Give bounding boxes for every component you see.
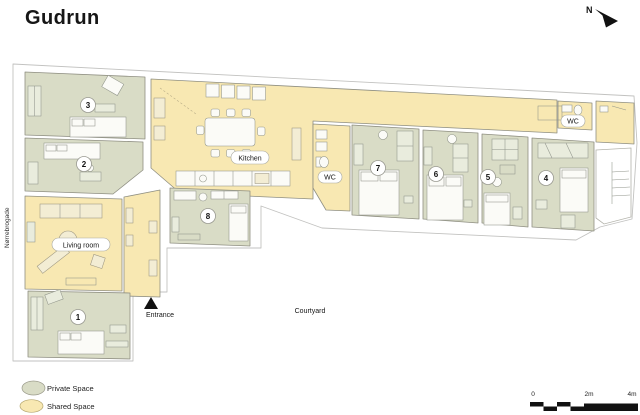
sofa bbox=[40, 204, 102, 218]
badge-1: 1 bbox=[76, 313, 81, 322]
entrance-triangle-icon bbox=[144, 297, 158, 309]
badge-3: 3 bbox=[86, 101, 91, 110]
room-label-kitchen: Kitchen bbox=[231, 151, 269, 164]
room-label-living: Living room bbox=[52, 238, 110, 251]
dining-table bbox=[205, 118, 255, 146]
scale-tick-2m: 2m bbox=[584, 391, 593, 398]
badge-7: 7 bbox=[376, 164, 381, 173]
entrance-marker: Entrance bbox=[144, 297, 174, 319]
courtyard-label: Courtyard bbox=[295, 308, 326, 315]
legend-swatch-private bbox=[22, 381, 45, 395]
legend-swatch-shared bbox=[20, 400, 43, 413]
badge-5: 5 bbox=[486, 173, 491, 182]
wc-left-fixtures bbox=[316, 130, 329, 168]
badge-4: 4 bbox=[544, 174, 549, 183]
badge-8: 8 bbox=[206, 212, 211, 221]
badge-2: 2 bbox=[82, 160, 87, 169]
svg-text:WC: WC bbox=[324, 175, 336, 182]
scale-tick-4m: 4m bbox=[627, 391, 636, 398]
legend-label-shared: Shared Space bbox=[47, 402, 95, 411]
scale-tick-0: 0 bbox=[531, 391, 535, 398]
svg-text:Kitchen: Kitchen bbox=[238, 156, 261, 163]
street-label: Nørrebrogade bbox=[4, 207, 11, 248]
svg-text:WC: WC bbox=[567, 119, 579, 126]
scale-bar: 0 2m 4m bbox=[530, 391, 638, 411]
svg-text:Entrance: Entrance bbox=[146, 312, 174, 319]
room-label-wc-right: WC bbox=[561, 115, 585, 127]
north-arrow-icon bbox=[595, 9, 618, 28]
badge-6: 6 bbox=[434, 170, 439, 179]
north-label: N bbox=[586, 5, 593, 15]
legend: Private Space Shared Space bbox=[20, 381, 95, 412]
page-title: Gudrun bbox=[25, 7, 100, 29]
floorplan-svg: Gudrun N Nørrebrogade bbox=[0, 0, 640, 415]
north-compass: N bbox=[586, 5, 618, 28]
floorplan-page: Gudrun N Nørrebrogade bbox=[0, 0, 640, 415]
room-label-wc-left: WC bbox=[318, 171, 342, 183]
svg-text:Living room: Living room bbox=[63, 243, 99, 250]
stairwell bbox=[596, 148, 631, 224]
toilet-icon bbox=[320, 157, 329, 168]
legend-label-private: Private Space bbox=[47, 384, 94, 393]
